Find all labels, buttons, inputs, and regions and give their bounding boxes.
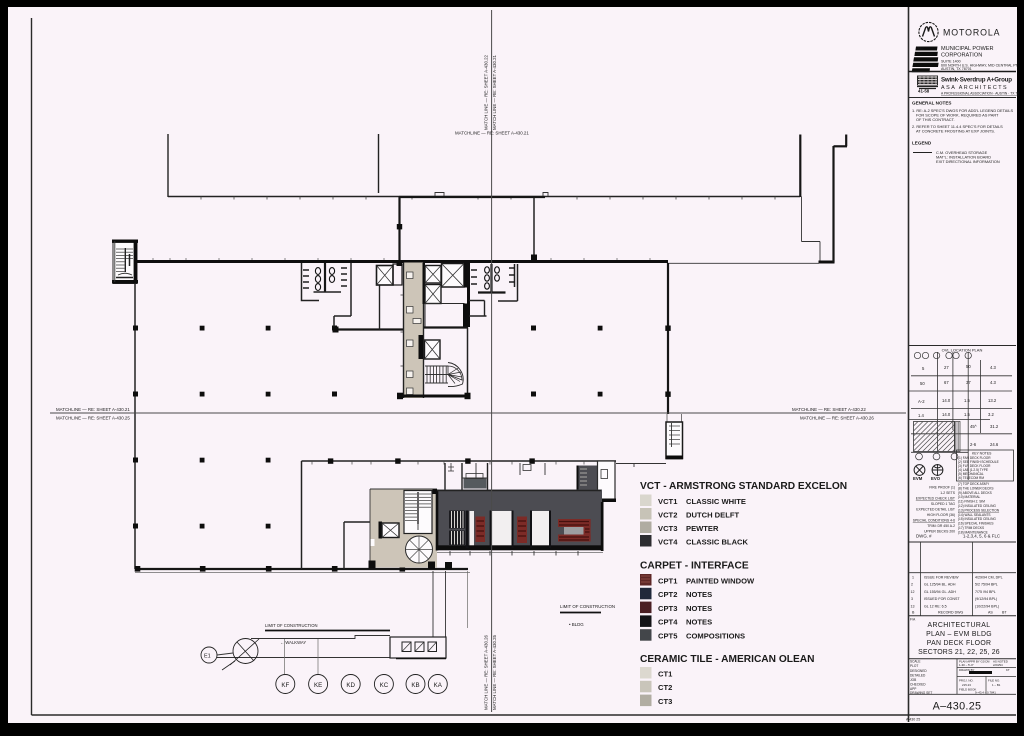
svg-text:GENERAL NOTES: GENERAL NOTES (912, 101, 951, 106)
svg-text:A PROFESSIONAL ASSOCIATION · A: A PROFESSIONAL ASSOCIATION · AUSTIN · TX… (941, 92, 1019, 96)
svg-text:4.3: 4.3 (990, 365, 996, 370)
svg-text:4.3: 4.3 (990, 380, 996, 385)
svg-text:(9/12/94 BPL): (9/12/94 BPL) (975, 597, 997, 601)
svg-text:PLOT: PLOT (910, 664, 918, 668)
svg-text:DETAILED: DETAILED (910, 674, 926, 678)
svg-text:A 430 25: A 430 25 (906, 718, 920, 722)
svg-text:KE: KE (314, 682, 322, 689)
svg-text:• BLDG: • BLDG (569, 622, 584, 627)
svg-text:ABC: ABC (918, 47, 926, 51)
svg-text:ISSUE FOR REVIEW: ISSUE FOR REVIEW (924, 576, 959, 580)
svg-text:CT1: CT1 (658, 669, 673, 678)
svg-text:50: 50 (966, 364, 971, 369)
svg-text:PAN DECK FLOOR: PAN DECK FLOOR (927, 640, 992, 647)
svg-text:27: 27 (944, 365, 949, 370)
svg-text:LEGEND: LEGEND (912, 141, 932, 146)
svg-text:1 – B1: 1 – B1 (992, 683, 1001, 687)
svg-text:A–430.25: A–430.25 (933, 701, 982, 713)
svg-text:2: 2 (911, 583, 913, 587)
svg-text:EXPECTED CHECK LIST: EXPECTED CHECK LIST (916, 497, 955, 501)
svg-text:PLAN – EVM BLDG: PLAN – EVM BLDG (926, 631, 992, 638)
svg-text:NOTES: NOTES (686, 618, 712, 627)
svg-text:CLASSIC WHITE: CLASSIC WHITE (686, 497, 746, 506)
svg-text:KB: KB (411, 682, 419, 689)
svg-text:NOTES: NOTES (686, 590, 712, 599)
svg-text:RECORD DWG: RECORD DWG (938, 611, 964, 615)
svg-text:VCT1: VCT1 (658, 497, 678, 506)
svg-text:PAINTED WINDOW: PAINTED WINDOW (686, 576, 755, 585)
svg-text:← WALKWAY: ← WALKWAY (280, 640, 306, 645)
svg-text:(16) SPECIAL FINISHES: (16) SPECIAL FINISHES (958, 522, 994, 526)
svg-text:EVM: EVM (913, 476, 923, 481)
svg-text:(13) PROCESS SELECTION: (13) PROCESS SELECTION (958, 508, 1000, 512)
svg-text:1.5: 1.5 (964, 412, 970, 417)
svg-text:31.2: 31.2 (990, 424, 999, 429)
svg-text:50: 50 (920, 381, 925, 386)
svg-text:41-58: 41-58 (918, 89, 930, 94)
svg-text:1: 1 (912, 576, 914, 580)
svg-text:1-30 – 5'-0": 1-30 – 5'-0" (959, 663, 974, 667)
svg-text:ISSUED FOR CONST: ISSUED FOR CONST (924, 597, 960, 601)
svg-text:4/29/94 CM, DPL: 4/29/94 CM, DPL (975, 576, 1003, 580)
svg-text:CERAMIC TILE - AMERICAN OLEAN: CERAMIC TILE - AMERICAN OLEAN (640, 654, 815, 665)
svg-text:24.6: 24.6 (990, 442, 999, 447)
svg-text:F/A: F/A (910, 618, 916, 622)
svg-text:GL 125/94 BL. ADH: GL 125/94 BL. ADH (924, 583, 956, 587)
svg-text:KEY NOTES: KEY NOTES (972, 452, 992, 456)
svg-text:CPT4: CPT4 (658, 618, 678, 627)
svg-text:MOTOROLA: MOTOROLA (943, 28, 1000, 38)
svg-text:5/2 75/94 BPL: 5/2 75/94 BPL (975, 583, 998, 587)
svg-text:EXPECTED DETAIL LIST: EXPECTED DETAIL LIST (916, 508, 955, 512)
svg-text:12: 12 (911, 590, 915, 594)
svg-text:(15) INSULATED CEILING: (15) INSULATED CEILING (958, 517, 996, 521)
svg-text:CPT2: CPT2 (658, 590, 677, 599)
svg-text:14.0: 14.0 (942, 412, 951, 417)
svg-text:(9) ABOVE ALL DECKS: (9) ABOVE ALL DECKS (958, 491, 992, 495)
svg-text:13: 13 (911, 604, 915, 608)
svg-text:(7) TOP DECK ASM'Y: (7) TOP DECK ASM'Y (958, 482, 990, 486)
svg-text:VCT2: VCT2 (658, 510, 677, 519)
svg-text:Swink·Sverdrup A+Group: Swink·Sverdrup A+Group (941, 77, 1012, 84)
svg-text:E1: E1 (204, 654, 211, 660)
svg-text:MATCHLINE — RE: SHEET A-430.26: MATCHLINE — RE: SHEET A-430.26 (800, 416, 874, 421)
svg-text:MATCH LINE — RE: SHEET A-430.2: MATCH LINE — RE: SHEET A-430.26 (484, 634, 489, 710)
svg-text:2-6: 2-6 (970, 442, 977, 447)
svg-text:LIMIT OF CONSTRUCTION: LIMIT OF CONSTRUCTION (265, 623, 318, 628)
svg-text:1.4: 1.4 (918, 413, 924, 418)
svg-text:(14) WALL SEALANTS: (14) WALL SEALANTS (958, 513, 991, 517)
svg-text:MATCH LINE — RE: SHEET A-430.2: MATCH LINE — RE: SHEET A-430.22 (484, 54, 489, 130)
svg-text:215.23: 215.23 (962, 683, 971, 687)
svg-text:DUTCH DELFT: DUTCH DELFT (686, 510, 740, 519)
svg-text:AT CONCRETE FROSTING AT EXP JO: AT CONCRETE FROSTING AT EXP JOINTS. (916, 128, 995, 133)
svg-text:NOTES: NOTES (686, 604, 712, 613)
svg-text:VCT3: VCT3 (658, 524, 677, 533)
svg-text:CT3: CT3 (658, 697, 672, 706)
svg-text:MATCH LINE — RE: SHEET A-430.2: MATCH LINE — RE: SHEET A-430.21 (492, 54, 497, 130)
svg-text:FIRE PROOF (1): FIRE PROOF (1) (929, 486, 955, 490)
svg-text:2/23/94: 2/23/94 (993, 663, 1003, 667)
svg-text:FILE NO.: FILE NO. (988, 679, 1000, 683)
svg-text:CPT1: CPT1 (658, 576, 678, 585)
svg-text:ARCHITECTURAL: ARCHITECTURAL (927, 622, 990, 629)
svg-text:(6) TELECOM RM: (6) TELECOM RM (958, 476, 984, 480)
svg-text:VCT4: VCT4 (658, 537, 678, 546)
svg-text:OVL LOCATION PLAN: OVL LOCATION PLAN (942, 348, 983, 353)
svg-text:FIELD BOOK: FIELD BOOK (959, 688, 976, 692)
svg-text:(10) MATERIAL: (10) MATERIAL (958, 495, 980, 499)
svg-text:MUNICIPAL POWER: MUNICIPAL POWER (941, 46, 994, 52)
svg-text:67: 67 (944, 380, 949, 385)
svg-text:KF: KF (281, 682, 289, 689)
svg-text:MATCHLINE — RE: SHEET A-430.25: MATCHLINE — RE: SHEET A-430.25 (56, 416, 130, 421)
svg-text:BT: BT (1002, 611, 1007, 615)
svg-text:3.2: 3.2 (988, 412, 994, 417)
svg-text:LIMIT OF CONSTRUCTION: LIMIT OF CONSTRUCTION (560, 604, 615, 609)
svg-text:CPT5: CPT5 (658, 632, 678, 641)
svg-text:A-2: A-2 (918, 399, 925, 404)
svg-text:CT2: CT2 (658, 683, 672, 692)
svg-text:MATCHLINE — RE: SHEET A-430.21: MATCHLINE — RE: SHEET A-430.21 (56, 407, 130, 412)
svg-text:(12) INSULATED CEILING: (12) INSULATED CEILING (958, 504, 996, 508)
svg-text:TRIM: DR 450 A-2: TRIM: DR 450 A-2 (927, 524, 955, 528)
svg-text:EXIT DIRECTIONAL INFORMATION: EXIT DIRECTIONAL INFORMATION (936, 159, 1000, 164)
svg-text:1.5: 1.5 (964, 398, 970, 403)
svg-text:JOB: JOB (910, 678, 916, 682)
svg-text:KA: KA (434, 682, 443, 689)
svg-text:KT: KT (1006, 668, 1010, 672)
svg-text:DESIGNED: DESIGNED (910, 669, 927, 673)
svg-text:1-2 SETS: 1-2 SETS (940, 491, 955, 495)
svg-text:MATCH LINE — RE: SHEET A-430.2: MATCH LINE — RE: SHEET A-430.25 (492, 634, 497, 710)
svg-text:SCALE: SCALE (910, 660, 920, 664)
svg-text:AS: AS (988, 611, 993, 615)
svg-text:SLOPED 1 TAG: SLOPED 1 TAG (931, 502, 956, 506)
svg-text:(17) TRIM DECKS: (17) TRIM DECKS (958, 526, 984, 530)
svg-text:CORPORATION: CORPORATION (941, 53, 982, 59)
svg-text:CLASSIC BLACK: CLASSIC BLACK (686, 537, 749, 546)
svg-text:COMPOSITIONS: COMPOSITIONS (686, 632, 745, 641)
svg-text:3: 3 (911, 597, 913, 601)
svg-text:45^: 45^ (970, 424, 977, 429)
svg-text:CPT3: CPT3 (658, 604, 677, 613)
svg-text:PEWTER: PEWTER (686, 524, 719, 533)
svg-text:(10/22/94 BPL): (10/22/94 BPL) (975, 604, 999, 608)
svg-text:7/75 /94 BPL: 7/75 /94 BPL (975, 590, 996, 594)
svg-text:ASA ARCHITECTS: ASA ARCHITECTS (941, 85, 1008, 91)
svg-text:1-2,3,4, 5, 6 & FLC: 1-2,3,4, 5, 6 & FLC (963, 534, 1000, 539)
svg-text:13.2: 13.2 (988, 398, 997, 403)
svg-text:CARPET - INTERFACE: CARPET - INTERFACE (640, 561, 749, 572)
svg-text:DWG. #: DWG. # (916, 534, 932, 539)
svg-text:SECTORS 21, 22, 25, 26: SECTORS 21, 22, 25, 26 (918, 649, 1000, 656)
svg-text:37: 37 (966, 380, 971, 385)
svg-text:MATCHLINE — RE: SHEET A-430.22: MATCHLINE — RE: SHEET A-430.22 (792, 407, 866, 412)
svg-text:(8) THE LOWER DECKS: (8) THE LOWER DECKS (958, 486, 994, 490)
svg-text:KD: KD (346, 682, 355, 689)
svg-text:SPECIAL CONDITIONS 4-6: SPECIAL CONDITIONS 4-6 (913, 519, 955, 523)
svg-text:GL 12 RE: 6.5: GL 12 RE: 6.5 (924, 604, 947, 608)
svg-text:GL 155/94 GL. ADH: GL 155/94 GL. ADH (924, 590, 956, 594)
svg-text:PROJ. NO.: PROJ. NO. (959, 679, 974, 683)
svg-text:AUSTIN, TX 78701: AUSTIN, TX 78701 (941, 67, 972, 71)
svg-text:14.0: 14.0 (942, 398, 951, 403)
svg-text:CHECKED: CHECKED (910, 683, 926, 687)
svg-text:VCT - ARMSTRONG STANDARD EXCEL: VCT - ARMSTRONG STANDARD EXCELON (640, 481, 847, 492)
svg-text:HIGH FLOOR (36): HIGH FLOOR (36) (927, 513, 955, 517)
svg-text:KC: KC (380, 682, 389, 689)
svg-text:EVO: EVO (931, 476, 941, 481)
svg-text:(11) FINISH 2. SIM: (11) FINISH 2. SIM (958, 500, 985, 504)
svg-text:MATCHLINE — RE: SHEET A-430.21: MATCHLINE — RE: SHEET A-430.21 (455, 131, 529, 136)
svg-text:OF THIS CONTRACT.: OF THIS CONTRACT. (916, 117, 955, 122)
